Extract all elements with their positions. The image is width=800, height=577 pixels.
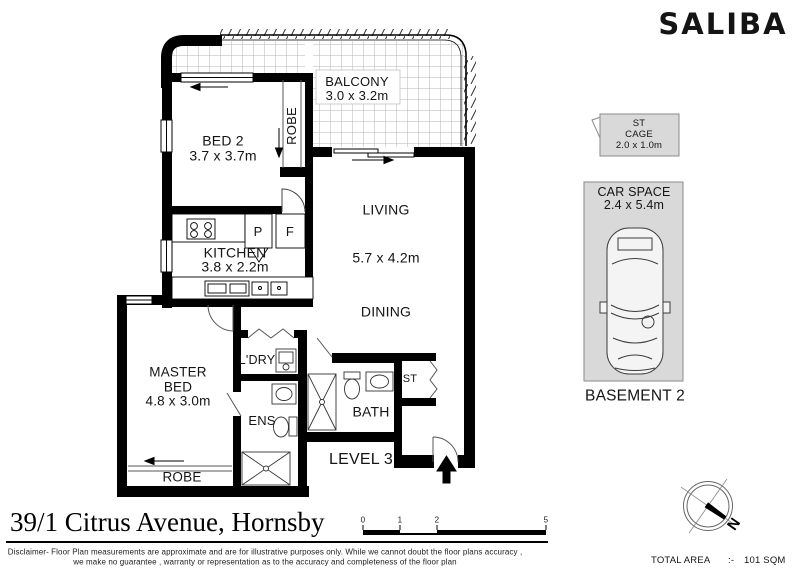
- scale-bar: [363, 525, 547, 535]
- room-size-balcony: 3.0 x 3.2m: [326, 89, 389, 103]
- total-area-value: 101 SQM: [744, 556, 786, 566]
- scale-label-0: 0: [361, 517, 366, 526]
- car-space-size: 2.4 x 5.4m: [604, 199, 664, 213]
- room-label-living: LIVING: [362, 202, 409, 217]
- ens-shower-icon: [242, 452, 290, 485]
- level-label: LEVEL 3: [329, 451, 393, 469]
- room-label-storage: ST: [403, 373, 417, 385]
- disclaimer-line2: we make no guarantee , warranty or repre…: [73, 559, 456, 568]
- sink-icon: [205, 281, 249, 296]
- room-label-robe-master: ROBE: [162, 471, 201, 486]
- compass-icon: N: [662, 460, 759, 555]
- address-title: 39/1 Citrus Avenue, Hornsby: [10, 507, 324, 538]
- storage-cage-line2: CAGE: [625, 130, 653, 140]
- ens-toilet-icon: [274, 417, 298, 437]
- label-fridge: F: [286, 225, 294, 239]
- bath-shower-icon: [308, 374, 336, 430]
- room-size-living-dining: 5.7 x 4.2m: [352, 250, 419, 265]
- washing-machine-icon: [276, 349, 296, 372]
- room-size-kitchen: 3.8 x 2.2m: [201, 259, 268, 274]
- scale-label-2: 2: [435, 517, 440, 526]
- room-label-laundry: L'DRY: [239, 354, 276, 368]
- floorplan-graphics: N: [0, 0, 800, 577]
- disclaimer-line1: Disclaimer- Floor Plan measurements are …: [8, 549, 523, 558]
- cooktop-icon: [187, 219, 215, 239]
- storage-cage-size: 2.0 x 1.0m: [616, 141, 662, 151]
- car-icon: [600, 228, 670, 374]
- basement-label: BASEMENT 2: [585, 387, 685, 404]
- scale-label-1: 1: [398, 517, 403, 526]
- floorplan-page: N BALCONY 3.0 x 3.2m BED 2 3.7 x 3.7m RO…: [0, 0, 800, 577]
- room-label-bath: BATH: [352, 404, 389, 419]
- room-label-master-1: MASTER: [149, 366, 206, 381]
- total-area-label: TOTAL AREA: [651, 556, 710, 566]
- ens-basin-icon: [272, 384, 296, 404]
- scale-label-5: 5: [544, 517, 549, 526]
- address-underline: [6, 541, 548, 543]
- entry-arrow-icon: [437, 456, 456, 483]
- room-label-robe-bed2: ROBE: [285, 107, 299, 145]
- bath-basin-icon: [366, 372, 393, 391]
- room-label-ensuite: ENS: [248, 414, 275, 428]
- floor-plan: [117, 29, 476, 497]
- bath-toilet-icon: [344, 372, 360, 399]
- side-panel-graphics: N: [584, 114, 759, 555]
- total-area-separator: :-: [728, 556, 734, 566]
- room-size-master: 4.8 x 3.0m: [145, 395, 210, 410]
- label-pantry: P: [254, 225, 263, 239]
- storage-cage-line1: ST: [633, 119, 646, 129]
- room-label-dining: DINING: [361, 304, 411, 319]
- room-size-bed2: 3.7 x 3.7m: [189, 148, 256, 163]
- saliba-logo: SALIBA: [658, 9, 787, 41]
